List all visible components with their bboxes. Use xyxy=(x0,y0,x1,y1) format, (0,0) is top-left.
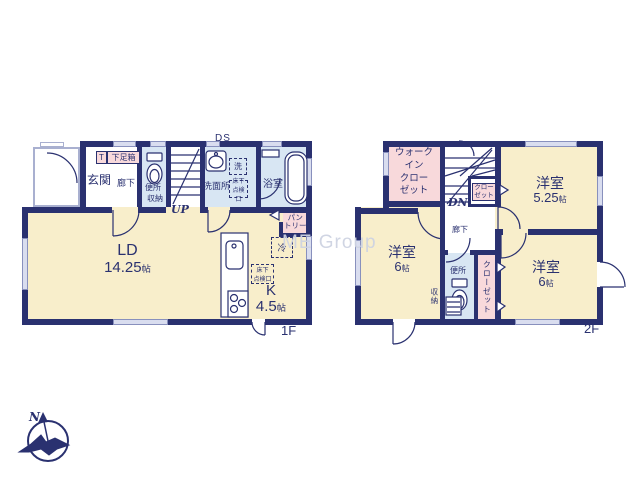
living-size: 14.25帖 xyxy=(95,260,160,276)
bedroom-c-label: 洋室 6帖 xyxy=(512,260,580,288)
window xyxy=(306,158,312,186)
living-name: LD xyxy=(95,243,160,260)
wall xyxy=(200,207,208,213)
wall xyxy=(200,141,205,207)
hatch-label: 床下 xyxy=(232,176,244,185)
shoe-box-label: 下足箱 xyxy=(107,151,140,164)
stairs-dn-label: DN xyxy=(448,197,468,209)
washer-box: 洗 xyxy=(229,158,247,175)
storage-label-2f: 収納 xyxy=(430,288,438,305)
closet-line: クロー xyxy=(474,184,494,192)
entrance-label: 玄関 xyxy=(87,174,111,187)
window xyxy=(113,141,136,147)
window xyxy=(515,319,560,325)
floor-hatch-washroom: 床下 点検口 xyxy=(229,180,248,198)
floor1-label: 1F xyxy=(281,324,296,338)
wall xyxy=(495,235,501,319)
wall xyxy=(474,255,478,319)
pantry-line: トリー xyxy=(284,222,307,230)
window xyxy=(113,319,168,325)
room-size: 6帖 xyxy=(512,275,580,289)
duct-space-label: DS xyxy=(215,134,231,145)
wall xyxy=(383,201,445,207)
toilet-label-2f: 便所 xyxy=(450,267,466,275)
compass-icon xyxy=(19,412,69,461)
washer-label: 洗 xyxy=(234,161,242,172)
door-opening xyxy=(393,319,415,325)
porch-step xyxy=(40,142,64,147)
washroom-label: 洗面所 xyxy=(203,182,230,191)
door-arc xyxy=(393,322,415,344)
room-size: 6帖 xyxy=(368,260,436,274)
living-label: LD 14.25帖 xyxy=(95,243,160,276)
wall xyxy=(440,250,448,255)
wall xyxy=(22,207,86,213)
closet-upper-label: クロー ゼット xyxy=(472,183,496,201)
window xyxy=(525,141,577,147)
hallway-label-2f: 廊下 xyxy=(452,226,468,234)
window xyxy=(262,141,282,147)
bedroom-b-label: 洋室 6帖 xyxy=(368,245,436,273)
hatch-label: 点検口 xyxy=(230,185,247,203)
wic-line: ゼット xyxy=(385,185,443,198)
closet-line: ゼット xyxy=(474,192,494,200)
kitchen-name: K xyxy=(252,283,290,299)
bathroom-label: 浴室 xyxy=(263,180,283,191)
wic-line: イン xyxy=(385,160,443,173)
hatch-label: 床下 xyxy=(256,265,268,274)
pantry-label: パン トリー xyxy=(284,214,307,230)
toilet-room-2f xyxy=(445,253,477,319)
entrance-porch xyxy=(33,147,80,207)
wall xyxy=(80,141,86,213)
hallway-label-1f: 廊下 xyxy=(117,179,135,188)
room-name: 洋室 xyxy=(368,245,436,260)
stairs-up-label: UP xyxy=(171,204,189,216)
window xyxy=(597,176,603,206)
bathroom-1f xyxy=(256,141,312,213)
watermark: ME Group xyxy=(282,232,377,254)
wall xyxy=(138,207,166,213)
door-opening xyxy=(252,319,265,325)
wall xyxy=(86,207,112,213)
kitchen-size: 4.5帖 xyxy=(252,299,290,315)
room-name: 洋室 xyxy=(516,176,584,191)
floor-plan-canvas: DS 玄関 T 下足箱 廊下 便所 収納 UP 洗面所 洗 床下 点検口 浴室 … xyxy=(0,0,640,480)
room-name: 洋室 xyxy=(512,260,580,275)
wic-line: ウォーク xyxy=(385,147,443,160)
door-arc xyxy=(600,262,625,287)
window xyxy=(150,141,166,147)
wall xyxy=(166,141,171,207)
wall xyxy=(256,141,261,207)
wall xyxy=(355,208,418,214)
compass-north-label: N xyxy=(29,411,40,424)
floor-hatch-kitchen: 床下 点検口 xyxy=(251,264,274,284)
toilet-label-1f: 便所 xyxy=(145,184,161,192)
kitchen-label: K 4.5帖 xyxy=(252,283,290,315)
wall xyxy=(528,229,603,235)
closet-vertical-label: クローゼット xyxy=(482,258,490,316)
wic-line: クロー xyxy=(385,173,443,186)
t-box-label: T xyxy=(96,151,107,164)
wic-label: ウォーク イン クロー ゼット xyxy=(385,147,443,198)
room-size: 5.25帖 xyxy=(516,191,584,205)
toilet-storage-label-1f: 収納 xyxy=(147,195,163,203)
floor2-label: 2F xyxy=(584,322,599,336)
window xyxy=(22,238,28,290)
door-opening xyxy=(597,262,603,287)
bedroom-a-label: 洋室 5.25帖 xyxy=(516,176,584,204)
